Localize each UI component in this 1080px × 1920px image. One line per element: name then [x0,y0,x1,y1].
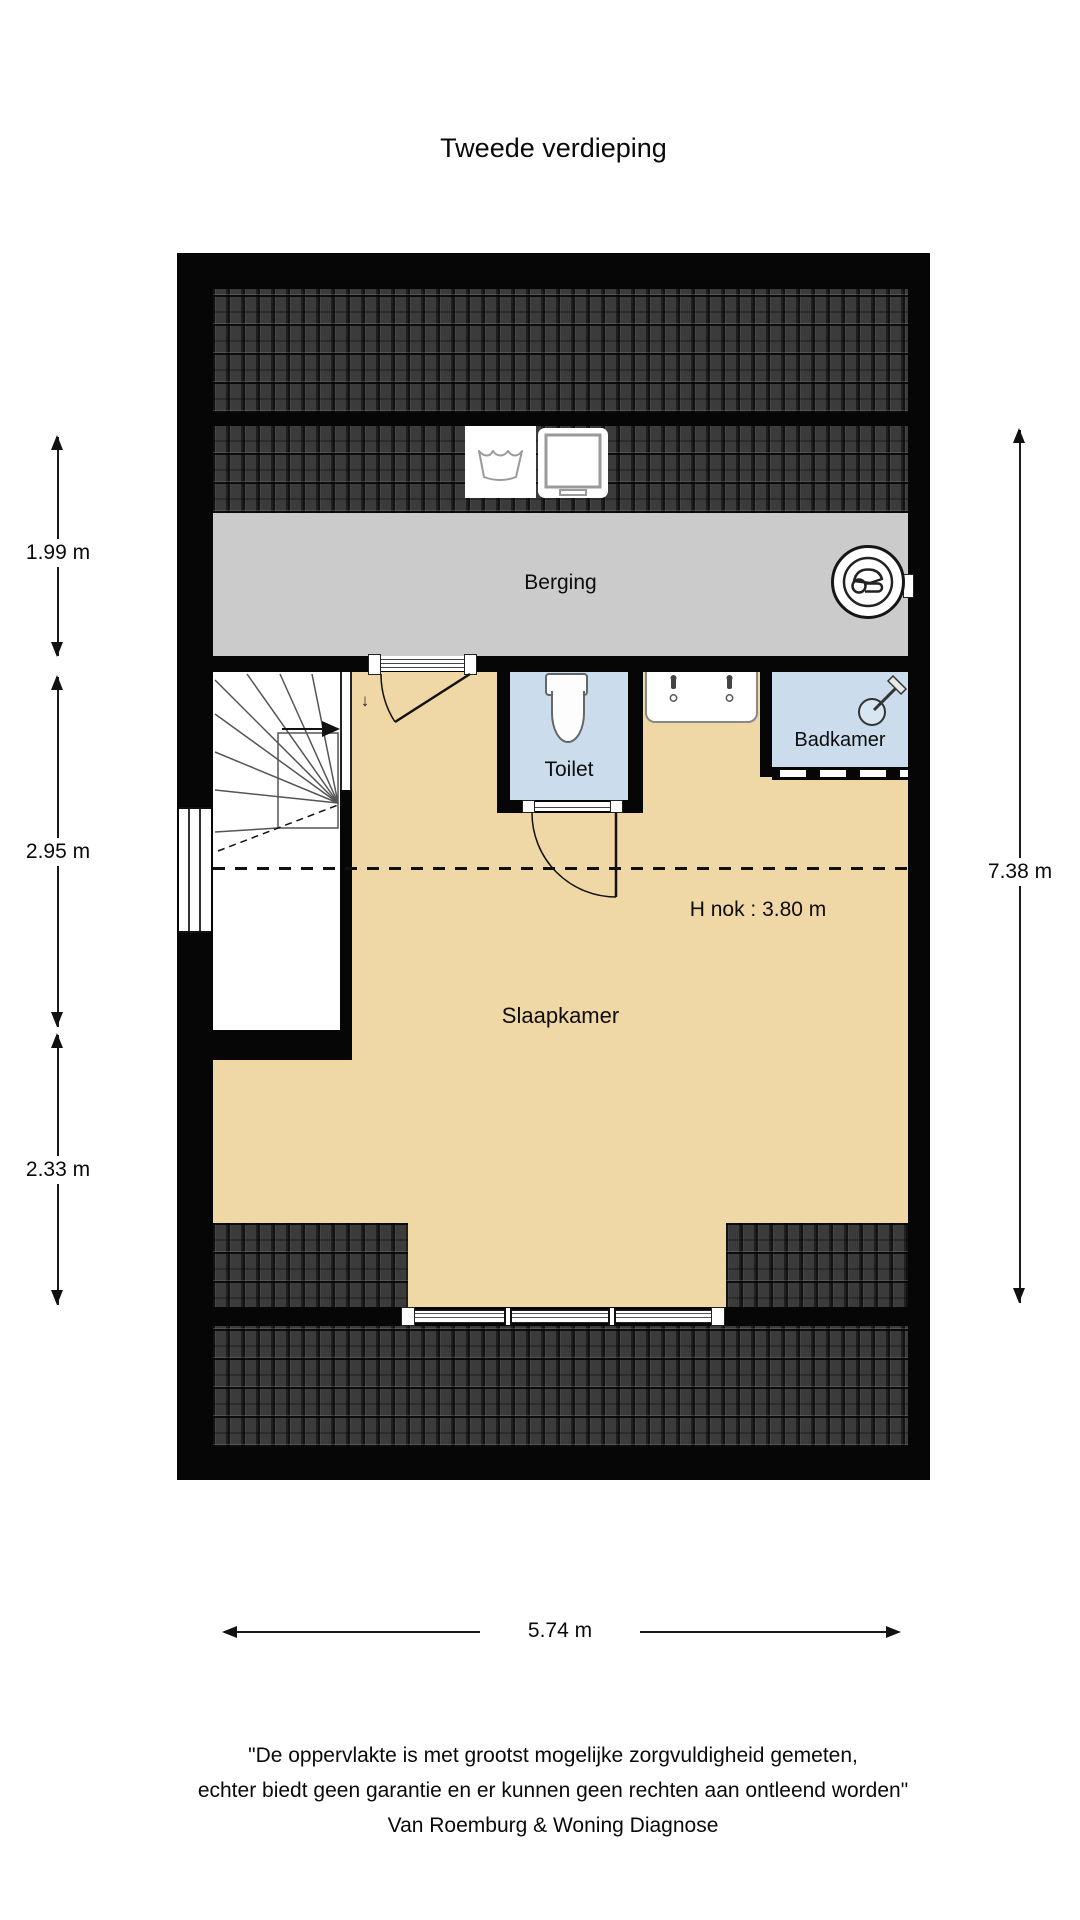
stairwell [213,672,340,1030]
window-frame-end [711,1307,725,1326]
bottom-window [405,1310,724,1323]
ridge-height-dashed-line [213,867,908,870]
window-mullion [608,1308,616,1325]
window-mullion [504,1308,512,1325]
room-label-berging: Berging [213,571,908,595]
washing-machine-icon [465,426,536,498]
room-label-badkamer: Badkamer [772,729,908,752]
doorframe-post [368,654,381,675]
badkamer-wall [760,672,772,777]
stairwell-wall-bottom [213,1030,352,1060]
toilet-wall [628,672,643,813]
roof-surface-bottom-left [213,1223,408,1312]
roof-surface-top [213,289,908,413]
disclaimer-line: echter biedt geen garantie en er kunnen … [100,1773,1006,1808]
dimension-label: 2.95 m [18,838,98,866]
stairwell-wall-right [340,790,352,1030]
roof-ridge-wall [213,413,908,426]
roof-surface-bottom-right [726,1223,908,1312]
doorframe-post [464,654,477,675]
room-label-toilet: Toilet [510,758,628,782]
washbasin [645,672,758,723]
page-title: Tweede verdieping [177,133,930,164]
dimension-label: 2.33 m [18,1156,98,1184]
floorplan-drawing: ↓ [177,253,930,1480]
disclaimer: "De oppervlakte is met grootst mogelijke… [100,1738,1006,1843]
toilet-wall [497,672,510,813]
tap-icon [726,675,732,701]
dimension-label: 7.38 m [975,858,1065,886]
badkamer-floor-area [772,672,908,767]
stairs-down-arrow-icon: ↓ [355,691,375,711]
shower-icon [858,698,886,726]
dimension-label: 5.74 m [480,1617,640,1645]
doorframe-post [610,800,623,813]
ridge-height-label: H nok : 3.80 m [498,898,1018,922]
roof-surface-bottom [213,1326,908,1447]
bedroom-door [381,656,464,671]
left-window [179,807,211,933]
stair-banister [340,672,352,790]
window-frame-end [401,1307,415,1326]
berging-partition-wall [213,656,908,672]
disclaimer-line: "De oppervlakte is met grootst mogelijke… [100,1738,1006,1773]
disclaimer-line: Van Roemburg & Woning Diagnose [100,1808,1006,1843]
toilet-door [535,802,610,811]
tap-icon [670,675,676,701]
dryer-icon [538,428,608,498]
floorplan-page: Tweede verdieping [0,0,1080,1920]
badkamer-open-wall [772,767,908,780]
room-label-slaapkamer: Slaapkamer [213,1003,908,1029]
dimension-label: 1.99 m [18,539,98,567]
doorframe-post [522,800,535,813]
